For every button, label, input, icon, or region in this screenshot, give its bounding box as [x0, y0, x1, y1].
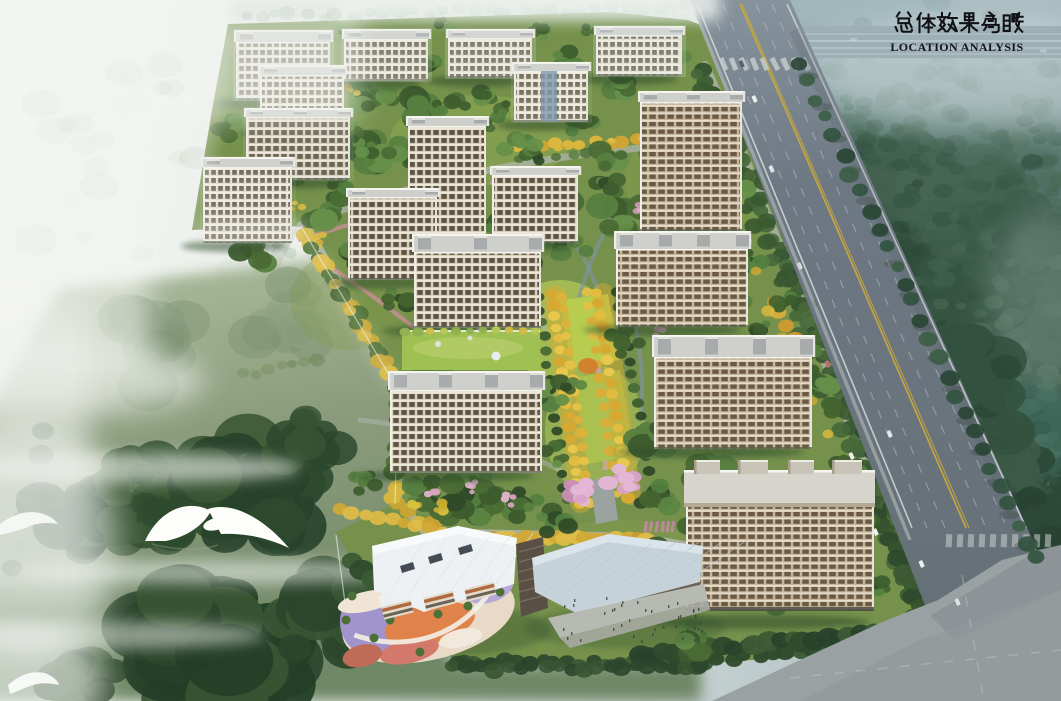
svg-text:LOCATION ANALYSIS: LOCATION ANALYSIS — [890, 40, 1023, 54]
